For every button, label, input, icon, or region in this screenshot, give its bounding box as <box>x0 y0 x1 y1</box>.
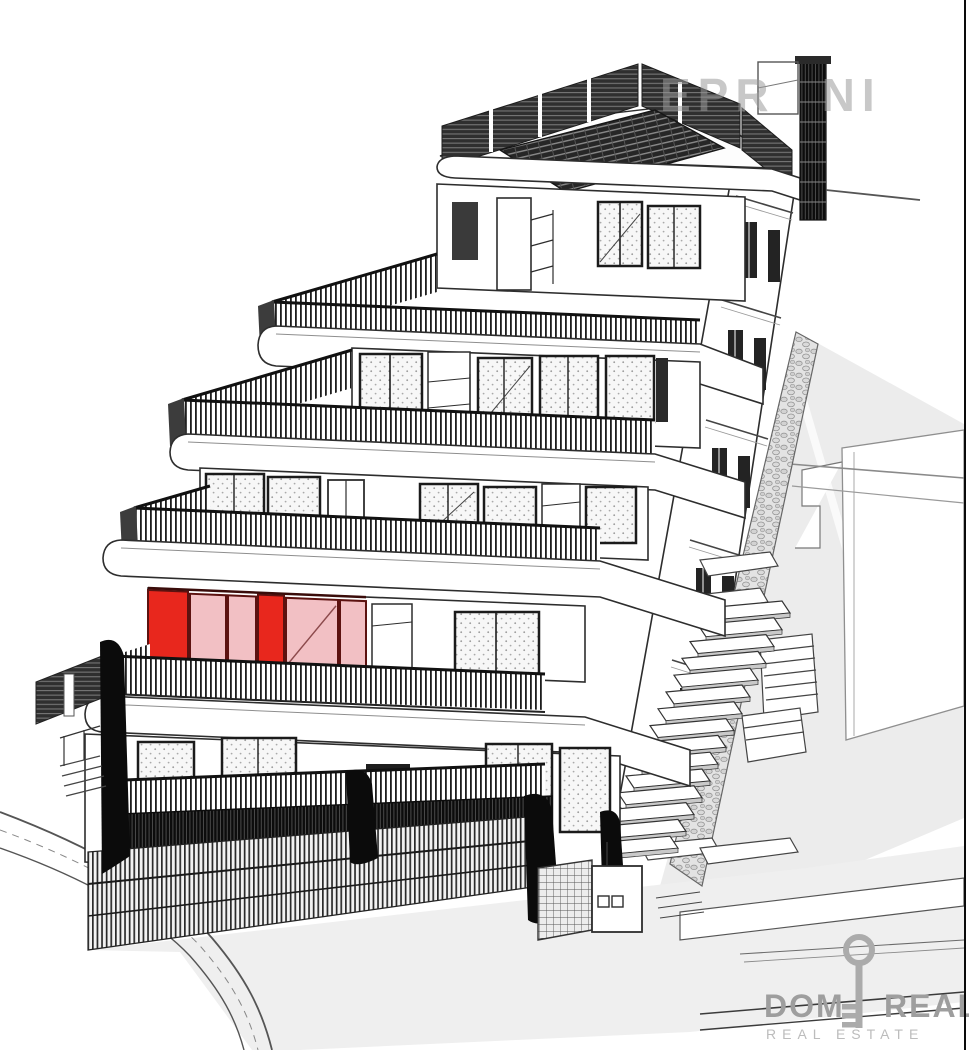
mesh-gate <box>538 860 592 940</box>
window <box>455 612 539 674</box>
floor-penthouse <box>437 184 745 301</box>
brand-logo: DOM REAL REAL ESTATE <box>756 920 966 1042</box>
watermark-text-right: NI <box>822 68 882 122</box>
logo-subtitle: REAL ESTATE <box>766 1026 924 1042</box>
wire <box>826 190 920 200</box>
building-drawing <box>0 0 969 1050</box>
window <box>606 356 654 422</box>
logo-word-real: REAL <box>884 990 969 1022</box>
page-border-line <box>964 0 966 1050</box>
window-dark <box>656 358 668 422</box>
watermark-text-left: EPR <box>660 68 776 122</box>
penthouse-window <box>452 202 478 260</box>
logo-word-dom: DOM <box>764 990 845 1022</box>
architectural-rendering-page: EPR NI DOM REAL REAL ESTATE <box>0 0 969 1050</box>
watermark: EPR NI <box>660 68 882 122</box>
utility-box <box>592 866 642 932</box>
core-box <box>372 604 412 670</box>
